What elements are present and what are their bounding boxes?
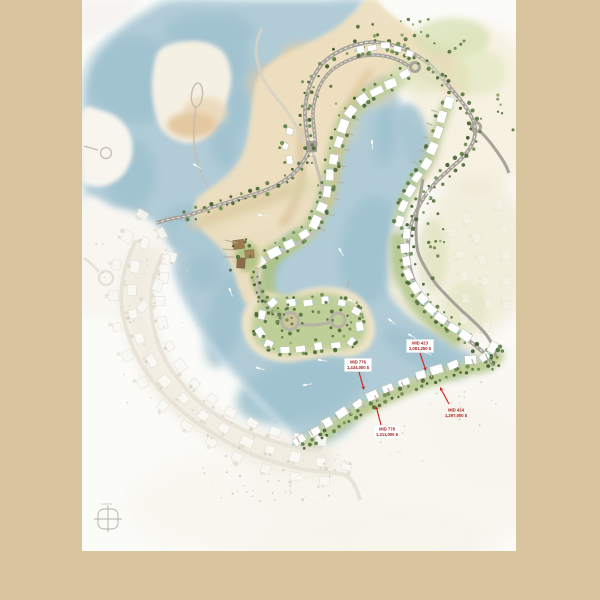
svg-text:1,434,000 $: 1,434,000 $ <box>347 365 370 370</box>
svg-text:NORTH: NORTH <box>101 502 112 506</box>
svg-text:MID 423: MID 423 <box>412 341 428 346</box>
svg-text:MID 778: MID 778 <box>379 427 395 432</box>
svg-text:1,297,000 $: 1,297,000 $ <box>445 413 468 418</box>
svg-text:1,311,000 $: 1,311,000 $ <box>376 432 399 437</box>
svg-text:MID 424: MID 424 <box>448 408 464 413</box>
svg-text:MID 776: MID 776 <box>350 360 366 365</box>
svg-text:2,081,250 $: 2,081,250 $ <box>409 346 432 351</box>
